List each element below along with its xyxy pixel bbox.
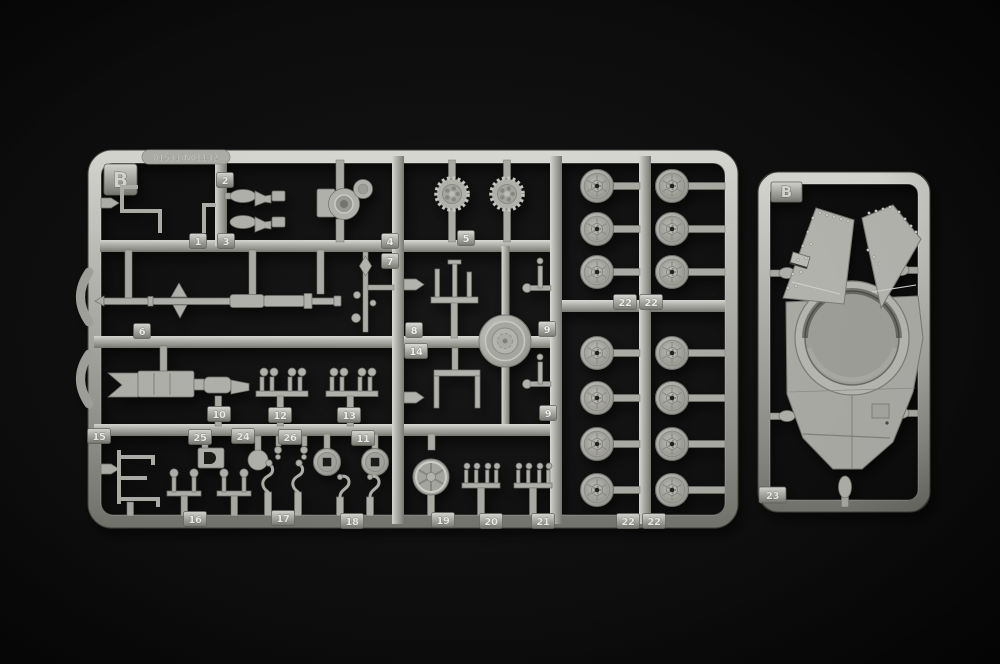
part-tag-22c: 22 xyxy=(617,514,640,529)
part-tag-14: 14 xyxy=(405,344,428,359)
part-tag-2: 2 xyxy=(217,173,234,188)
part-hatch-disc xyxy=(479,315,531,367)
svg-text:01531/N01132: 01531/N01132 xyxy=(153,154,219,163)
sprue-letter-tag: B xyxy=(771,182,802,202)
svg-text:3: 3 xyxy=(223,237,230,248)
svg-text:21: 21 xyxy=(536,517,550,528)
road-wheel xyxy=(656,256,689,289)
part-tag-23: 23 xyxy=(759,487,786,503)
svg-text:2: 2 xyxy=(222,176,229,187)
svg-text:6: 6 xyxy=(139,327,146,338)
road-wheel xyxy=(581,474,614,507)
svg-text:4: 4 xyxy=(387,237,394,248)
road-wheel xyxy=(656,337,689,370)
svg-text:16: 16 xyxy=(188,515,202,526)
svg-text:18: 18 xyxy=(345,517,359,528)
svg-text:19: 19 xyxy=(436,516,450,527)
svg-text:7: 7 xyxy=(387,257,394,268)
svg-text:5: 5 xyxy=(463,234,470,245)
svg-text:B: B xyxy=(781,183,792,201)
svg-text:22: 22 xyxy=(618,298,632,309)
svg-text:1: 1 xyxy=(195,237,202,248)
part-tag-25: 25 xyxy=(189,430,212,445)
road-wheel xyxy=(656,474,689,507)
part-tag-9a: 9 xyxy=(539,322,556,337)
part-tag-8: 8 xyxy=(406,323,423,338)
svg-text:17: 17 xyxy=(276,514,290,525)
embossed-code: 01531/N01132 xyxy=(142,150,230,164)
road-wheel xyxy=(656,170,689,203)
svg-text:23: 23 xyxy=(766,491,780,502)
road-wheel xyxy=(656,428,689,461)
svg-text:22: 22 xyxy=(647,517,661,528)
part-tag-4: 4 xyxy=(382,234,399,249)
part-tag-15: 15 xyxy=(88,429,111,444)
svg-text:26: 26 xyxy=(283,433,297,444)
photo-canvas: 01531/N01132 B xyxy=(0,0,1000,664)
part-tag-13: 13 xyxy=(338,408,361,423)
part-tag-22a: 22 xyxy=(614,295,637,310)
part-tag-20: 20 xyxy=(480,514,503,529)
part-tag-16: 16 xyxy=(184,512,207,527)
svg-text:9: 9 xyxy=(545,409,552,420)
part-tag-24: 24 xyxy=(232,429,255,444)
part-tag-17: 17 xyxy=(272,511,295,526)
svg-text:10: 10 xyxy=(212,410,226,421)
part-tag-7: 7 xyxy=(382,254,399,269)
svg-text:14: 14 xyxy=(409,347,423,358)
part-tag-21: 21 xyxy=(532,514,555,529)
sprue-photo: 01531/N01132 B xyxy=(0,0,1000,664)
svg-text:12: 12 xyxy=(273,411,287,422)
svg-text:22: 22 xyxy=(621,517,635,528)
part-tag-5: 5 xyxy=(458,231,475,246)
svg-text:24: 24 xyxy=(236,432,250,443)
part-tag-18: 18 xyxy=(341,514,364,529)
svg-text:9: 9 xyxy=(544,325,551,336)
part-tag-19: 19 xyxy=(432,513,455,528)
road-wheel xyxy=(581,428,614,461)
svg-text:22: 22 xyxy=(644,298,658,309)
part-tag-10: 10 xyxy=(208,407,231,422)
svg-text:11: 11 xyxy=(356,434,370,445)
part-tag-1: 1 xyxy=(190,234,207,249)
road-wheel xyxy=(581,213,614,246)
road-wheel xyxy=(581,337,614,370)
part-tag-26: 26 xyxy=(279,430,302,445)
svg-text:13: 13 xyxy=(342,411,356,422)
road-wheel xyxy=(581,170,614,203)
part-tag-11: 11 xyxy=(352,431,375,446)
part-tag-3: 3 xyxy=(218,234,235,249)
part-tag-12: 12 xyxy=(269,408,292,423)
road-wheel xyxy=(656,213,689,246)
svg-text:25: 25 xyxy=(193,433,207,444)
svg-text:20: 20 xyxy=(484,517,498,528)
road-wheel xyxy=(656,382,689,415)
svg-text:8: 8 xyxy=(411,326,418,337)
part-tag-6: 6 xyxy=(134,324,151,339)
part-tag-22d: 22 xyxy=(643,514,666,529)
svg-text:15: 15 xyxy=(92,432,106,443)
part-tag-9b: 9 xyxy=(540,406,557,421)
road-wheel xyxy=(581,256,614,289)
road-wheel xyxy=(581,382,614,415)
part-tag-22b: 22 xyxy=(640,295,663,310)
